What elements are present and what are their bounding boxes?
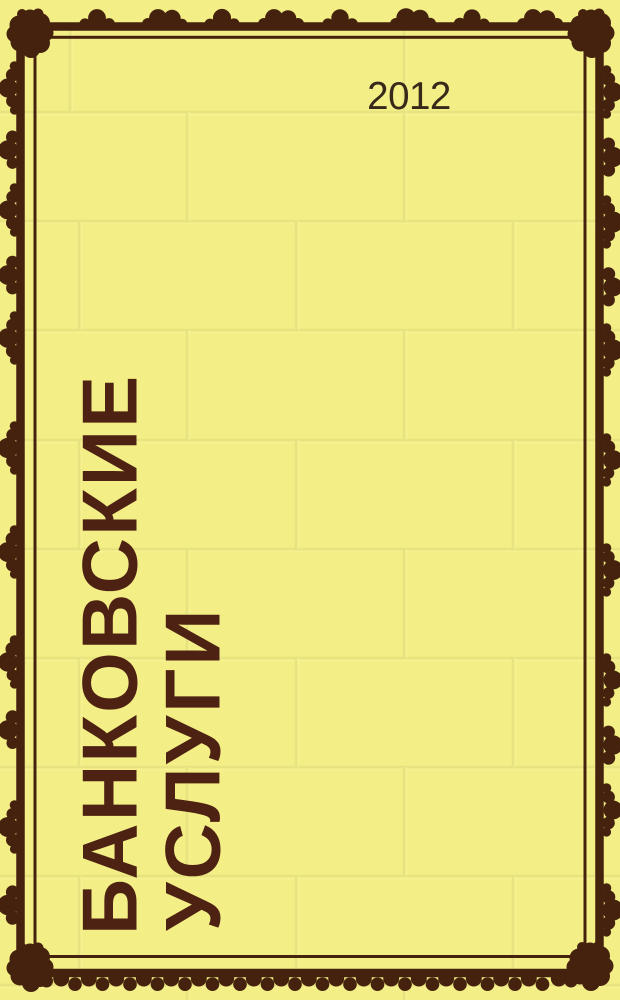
svg-text:УСЛУГИ: УСЛУГИ (149, 607, 237, 931)
svg-text:БАНКОВСКИЕ: БАНКОВСКИЕ (66, 374, 154, 935)
svg-text:2012: 2012 (367, 75, 451, 118)
